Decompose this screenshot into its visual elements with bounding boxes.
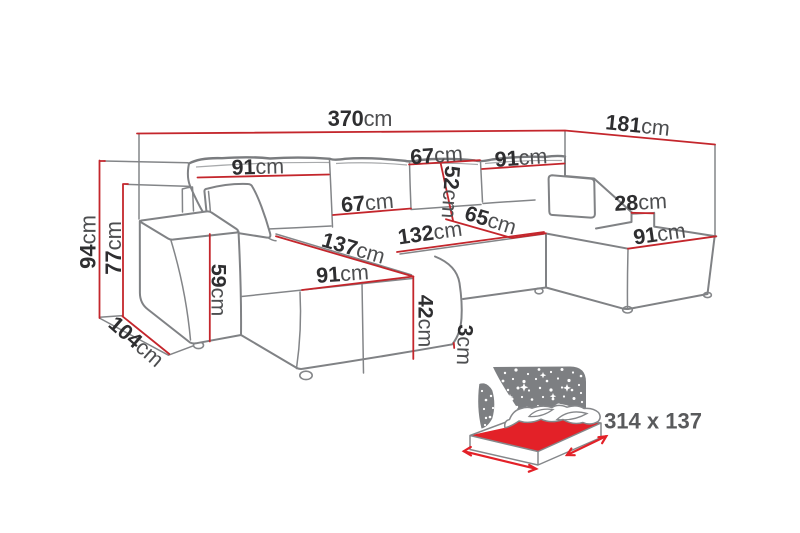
svg-text:3cm: 3cm [452,324,477,365]
svg-text:42cm: 42cm [414,295,438,348]
svg-text:91cm: 91cm [494,144,548,172]
svg-text:91cm: 91cm [315,260,369,288]
svg-text:94cm: 94cm [76,215,101,269]
svg-text:52cm: 52cm [437,165,465,219]
svg-text:28cm: 28cm [614,189,668,216]
svg-text:91cm: 91cm [231,154,284,179]
svg-text:77cm: 77cm [101,221,126,275]
svg-text:67cm: 67cm [340,189,394,217]
svg-text:314 x 137: 314 x 137 [604,409,702,434]
svg-text:59cm: 59cm [207,264,231,317]
svg-text:370cm: 370cm [328,106,392,131]
